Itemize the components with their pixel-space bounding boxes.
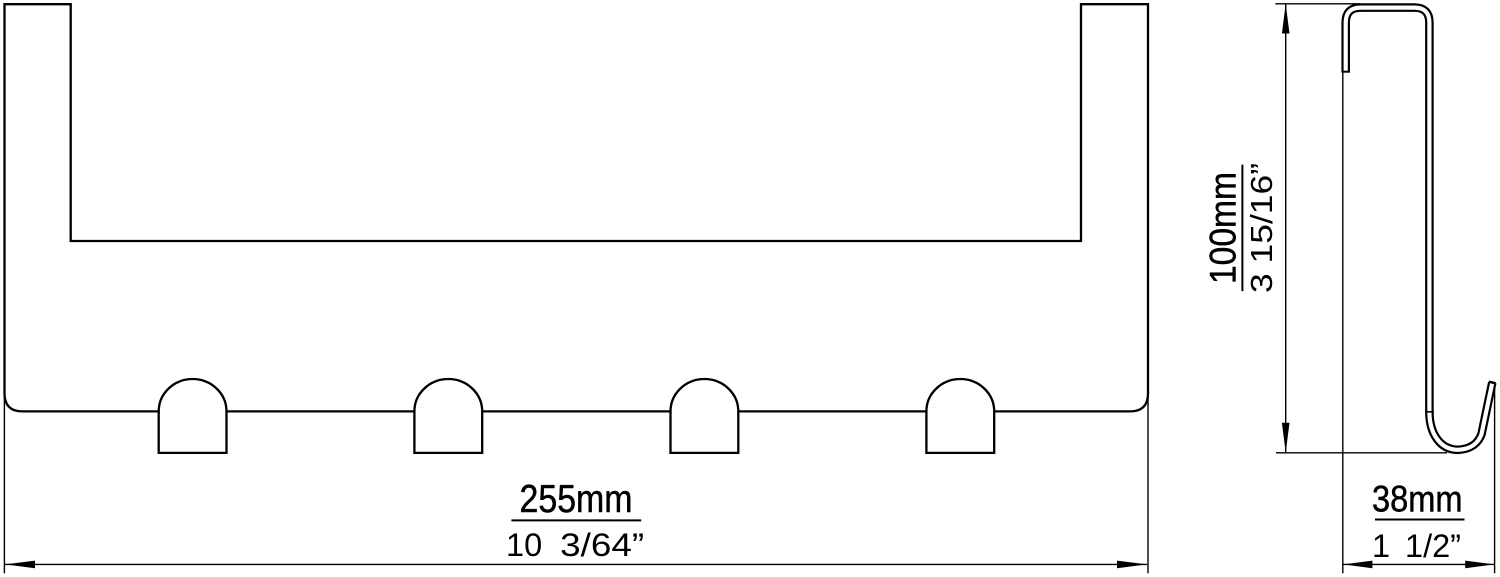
svg-text:10: 10 bbox=[506, 527, 542, 563]
svg-text:1: 1 bbox=[1372, 528, 1390, 564]
svg-text:100mm: 100mm bbox=[1202, 172, 1243, 284]
svg-text:1/2”: 1/2” bbox=[1405, 528, 1461, 564]
svg-text:3/64”: 3/64” bbox=[560, 527, 644, 563]
svg-text:255mm: 255mm bbox=[520, 478, 633, 521]
svg-text:38mm: 38mm bbox=[1372, 479, 1463, 520]
svg-text:3 15/16”: 3 15/16” bbox=[1245, 163, 1279, 293]
